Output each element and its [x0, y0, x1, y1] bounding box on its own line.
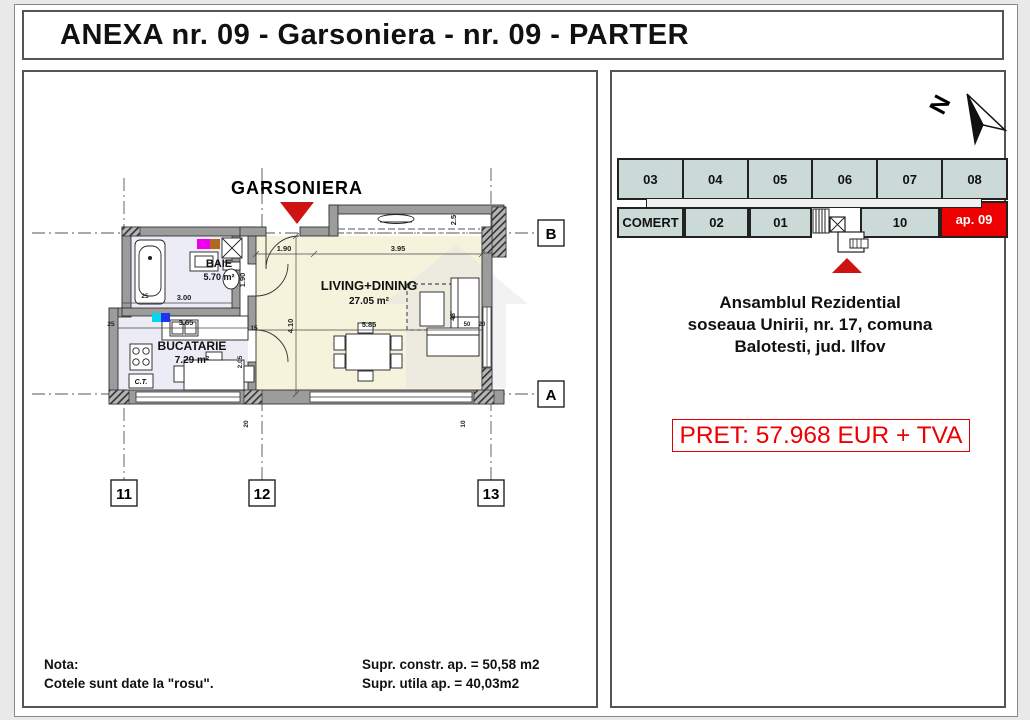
- unit-04: 04: [684, 160, 749, 198]
- room-area-bucatarie: 7.29 m²: [175, 355, 210, 366]
- floorplan-drawing: GARSONIERA: [24, 72, 596, 706]
- note-text: Cotele sunt date la "rosu".: [44, 674, 214, 693]
- room-label-living: LIVING+DINING: [321, 278, 417, 293]
- unit-10: 10: [860, 207, 940, 238]
- stove-icon: [130, 344, 152, 370]
- grid-label-12: 12: [254, 486, 271, 503]
- svg-text:2.5: 2.5: [449, 215, 458, 225]
- kitchen-tile-cyan: [152, 313, 161, 322]
- bath-shelf-orange: [210, 239, 220, 249]
- svg-text:3.95: 3.95: [391, 244, 406, 253]
- stairs-elevator-icon: [810, 207, 870, 254]
- address-line-3: Balotesti, jud. Ilfov: [630, 336, 990, 358]
- room-label-baie: BAIE: [206, 258, 232, 270]
- address-line-2: soseaua Unirii, nr. 17, comuna: [630, 314, 990, 336]
- unit-02: 02: [684, 207, 749, 238]
- svg-text:25: 25: [141, 293, 149, 300]
- svg-text:48': 48': [450, 311, 457, 321]
- svg-text:C.T.: C.T.: [135, 379, 148, 386]
- svg-text:20: 20: [479, 322, 486, 328]
- site-corridor: [646, 198, 982, 208]
- svg-text:1.90: 1.90: [277, 244, 292, 253]
- boiler-ct-box: C.T.: [129, 374, 153, 388]
- svg-text:4.10: 4.10: [286, 319, 295, 334]
- room-area-baie: 5.70 m²: [203, 272, 234, 282]
- unit-01: 01: [749, 207, 812, 238]
- svg-text:20: 20: [243, 420, 250, 428]
- address-block: Ansamblul Rezidential soseaua Unirii, nr…: [630, 292, 990, 358]
- washing-machine-icon: [222, 238, 242, 258]
- svg-text:1.90: 1.90: [238, 273, 247, 288]
- svg-text:50: 50: [464, 322, 471, 328]
- unit-06: 06: [813, 160, 878, 198]
- svg-text:5.85: 5.85: [362, 320, 377, 329]
- unit-07: 07: [878, 160, 943, 198]
- floorplan-panel: GARSONIERA: [22, 70, 598, 708]
- price-box: PRET: 57.968 EUR + TVA: [672, 419, 970, 452]
- svg-text:25: 25: [107, 321, 115, 328]
- title-bar: ANEXA nr. 09 - Garsoniera - nr. 09 - PAR…: [22, 10, 1004, 60]
- plan-pointer-triangle-icon: [280, 202, 314, 224]
- site-top-row: 03 04 05 06 07 08: [617, 158, 1008, 200]
- svg-text:3.65: 3.65: [179, 318, 194, 327]
- entry-lamp-icon: [378, 215, 414, 224]
- grid-label-13: 13: [483, 486, 500, 503]
- unit-08: 08: [943, 160, 1006, 198]
- site-diagram: 03 04 05 06 07 08 COMERT 02 01 10 ap. 09: [617, 158, 1008, 254]
- room-area-living: 27.05 m²: [349, 296, 390, 307]
- room-label-bucatarie: BUCATARIE: [158, 339, 227, 353]
- price-text: PRET: 57.968 EUR + TVA: [679, 422, 962, 450]
- svg-text:15: 15: [250, 325, 258, 332]
- unit-03: 03: [619, 160, 684, 198]
- bath-shelf-magenta: [197, 239, 210, 249]
- kitchen-tile-blue: [161, 313, 170, 322]
- overhang-dashes: [338, 229, 480, 233]
- bathtub-icon: [135, 240, 165, 304]
- grid-label-11: 11: [116, 486, 132, 503]
- north-label: N: [925, 91, 956, 119]
- site-pointer-triangle-icon: [832, 258, 862, 273]
- grid-label-A: A: [546, 387, 557, 404]
- svg-text:2.05: 2.05: [237, 355, 244, 368]
- svg-text:10: 10: [460, 420, 467, 428]
- page-title: ANEXA nr. 09 - Garsoniera - nr. 09 - PAR…: [60, 19, 689, 52]
- svg-text:3.00: 3.00: [177, 293, 192, 302]
- unit-05: 05: [749, 160, 814, 198]
- unit-comert: COMERT: [617, 207, 684, 238]
- address-line-1: Ansamblul Rezidential: [630, 292, 990, 314]
- note-label: Nota:: [44, 655, 79, 674]
- area-usable: Supr. utila ap. = 40,03m2: [362, 674, 519, 693]
- north-arrow-icon: N: [925, 80, 1010, 158]
- grid-label-B: B: [546, 226, 557, 243]
- area-constructed: Supr. constr. ap. = 50,58 m2: [362, 655, 539, 674]
- plan-title: GARSONIERA: [231, 178, 363, 198]
